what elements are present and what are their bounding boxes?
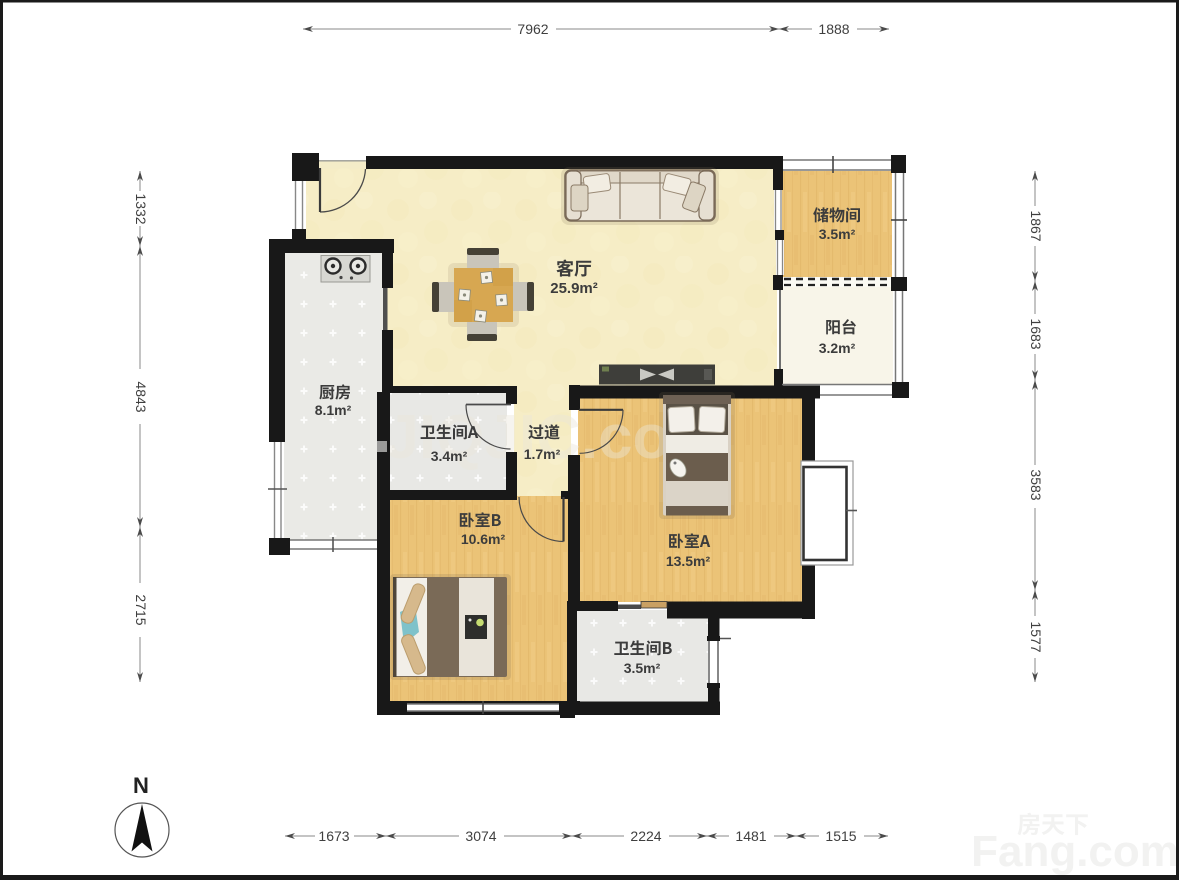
svg-text:1683: 1683 bbox=[1028, 318, 1044, 349]
svg-text:1.7m²: 1.7m² bbox=[524, 446, 561, 462]
svg-text:1867: 1867 bbox=[1028, 210, 1044, 241]
svg-text:1673: 1673 bbox=[318, 828, 349, 844]
svg-text:13.5m²: 13.5m² bbox=[666, 553, 711, 569]
svg-text:1888: 1888 bbox=[818, 21, 849, 37]
svg-text:N: N bbox=[133, 773, 149, 798]
svg-text:3.4m²: 3.4m² bbox=[431, 448, 468, 464]
svg-text:1577: 1577 bbox=[1028, 621, 1044, 652]
svg-text:25.9m²: 25.9m² bbox=[550, 280, 598, 297]
svg-text:2715: 2715 bbox=[133, 594, 149, 625]
svg-text:3.5m²: 3.5m² bbox=[624, 660, 661, 676]
svg-text:2224: 2224 bbox=[630, 828, 661, 844]
svg-text:Fang.com: Fang.com bbox=[971, 827, 1179, 876]
svg-text:3583: 3583 bbox=[1028, 469, 1044, 500]
svg-text:1481: 1481 bbox=[735, 828, 766, 844]
svg-text:10.6m²: 10.6m² bbox=[461, 531, 506, 547]
svg-text:3074: 3074 bbox=[465, 828, 496, 844]
svg-text:1332: 1332 bbox=[133, 193, 149, 224]
svg-text:8.1m²: 8.1m² bbox=[315, 402, 352, 418]
svg-text:3.2m²: 3.2m² bbox=[819, 340, 856, 356]
svg-text:3.5m²: 3.5m² bbox=[819, 226, 856, 242]
svg-text:4843: 4843 bbox=[133, 381, 149, 412]
svg-text:1515: 1515 bbox=[825, 828, 856, 844]
svg-text:7962: 7962 bbox=[517, 21, 548, 37]
